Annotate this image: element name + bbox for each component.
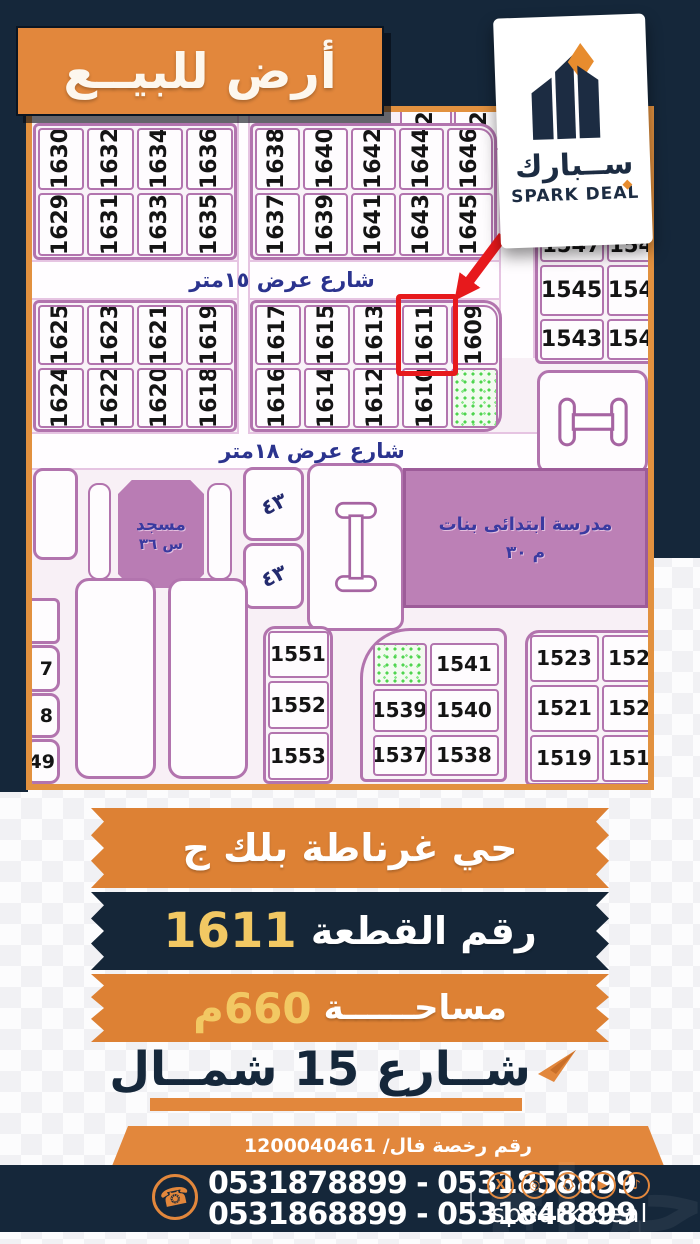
green-strip xyxy=(88,483,111,580)
plot-cell: 1638 xyxy=(255,128,300,191)
plot-cell: 1553 xyxy=(268,732,329,780)
plot-cell: 1641 xyxy=(351,193,396,256)
plot-cell: 1623 xyxy=(87,305,134,365)
plot-cell: 1621 xyxy=(137,305,184,365)
plot-cell: 1540 xyxy=(430,689,499,732)
page-title: أرض للبيــع xyxy=(63,43,336,100)
plot-cell: 1518 xyxy=(602,735,655,782)
plot-cell: 1635 xyxy=(186,193,233,256)
plot-cell: 1523 xyxy=(530,635,599,682)
street-direction-underline xyxy=(150,1098,522,1111)
plot-cell: 1646 xyxy=(447,128,492,191)
plot-cell: 1520 xyxy=(602,685,655,732)
logo-arabic-name: ســبارك xyxy=(514,146,633,185)
plot-block-1609-1617: 1617 1615 1613 1611 1609 1616 1614 1612 … xyxy=(250,300,502,432)
plot-cell: 1616 xyxy=(255,368,301,428)
plot-number-value: 1611 xyxy=(163,903,297,959)
plot-cell: 1620 xyxy=(137,368,184,428)
plot-cell: 1537 xyxy=(373,735,427,776)
plot-cell: 1617 xyxy=(255,305,301,365)
school-label: مدرسة ابتدائى بنات xyxy=(439,514,613,535)
plot-cell: 1637 xyxy=(255,193,300,256)
plot-cell: 1632 xyxy=(87,128,134,191)
park-cell xyxy=(373,643,427,686)
navy-background-left xyxy=(0,0,28,792)
plot-cell: 1630 xyxy=(38,128,85,191)
phone-icon: ☎ xyxy=(152,1174,198,1220)
plot-cell: 1541 xyxy=(430,643,499,686)
plot-cell: 49 xyxy=(26,739,60,784)
area-ribbon: مساحــــــة 660م xyxy=(91,974,609,1042)
park-cell xyxy=(26,598,60,644)
plot-cell: 1551 xyxy=(268,631,329,679)
unlabeled-plot xyxy=(33,468,78,560)
plot-cell: 1610 xyxy=(402,368,448,428)
i-beam-icon xyxy=(331,495,381,599)
plot-block-1518-1523: 1523 1522 1521 1520 1519 1518 xyxy=(525,630,654,786)
district-label: حي غرناطة بلك ج xyxy=(182,826,517,870)
plot-block-1618-1625: 1625 1623 1621 1619 1624 1622 1620 1618 xyxy=(33,300,237,432)
annotation-cell: ٤٣ xyxy=(243,467,304,541)
plot-cell: 1634 xyxy=(137,128,184,191)
logo-card: ســبارك SPARK DEAL xyxy=(493,13,653,248)
plot-cell: 1625 xyxy=(38,305,85,365)
plot-cell: 7 xyxy=(26,645,60,692)
plot-block-1537-1541: 1541 1539 1540 1537 1538 xyxy=(360,628,507,782)
plot-cell: 1539 xyxy=(373,689,427,732)
plot-cell: 1639 xyxy=(303,193,348,256)
plot-cell: 1552 xyxy=(268,681,329,729)
plot-number-ribbon: رقم القطعة 1611 xyxy=(91,892,609,970)
mosque-label: مسجد xyxy=(136,515,186,535)
plot-cell: 1609 xyxy=(451,305,497,365)
school-block: مدرسة ابتدائى بنات م ٣٠ xyxy=(403,468,648,608)
dumbbell-icon xyxy=(551,393,635,451)
mosque-number: س ٣٦ xyxy=(139,535,183,553)
plot-cell: 1612 xyxy=(353,368,399,428)
plot-cell: 1614 xyxy=(304,368,350,428)
phone-numbers: 0531878899 - 0531858899 0531868899 - 053… xyxy=(208,1168,466,1230)
plot-cell: 1631 xyxy=(87,193,134,256)
plot-cell: 1622 xyxy=(87,368,134,428)
area-value: 660م xyxy=(193,984,311,1033)
plot-cell: 1544 xyxy=(607,265,655,316)
plot-cell: 1521 xyxy=(530,685,599,732)
plot-cell: 1538 xyxy=(430,735,499,776)
plot-cell: 1519 xyxy=(530,735,599,782)
area-label: مساحــــــة xyxy=(324,988,507,1028)
plot-cell: 1615 xyxy=(304,305,350,365)
mosque-block: مسجد س ٣٦ xyxy=(118,480,204,588)
school-number: م ٣٠ xyxy=(506,543,545,563)
facility-block xyxy=(537,370,648,474)
navy-background-right xyxy=(654,0,700,558)
watermark: حراج xyxy=(485,1147,700,1244)
title-banner: أرض للبيــع xyxy=(16,26,384,116)
plot-cell: 1644 xyxy=(399,128,444,191)
district-ribbon: حي غرناطة بلك ج xyxy=(91,808,609,888)
green-strip xyxy=(207,483,232,580)
park-cell xyxy=(451,368,497,428)
plot-block-1629-1636: 1630 1632 1634 1636 1629 1631 1633 1635 xyxy=(33,123,237,260)
plot-block-1551-1553: 1551 1552 1553 xyxy=(263,626,333,784)
street-15m-label: شارع عرض ١٥متر xyxy=(92,268,472,292)
phone-line-2: 0531868899 - 0531848899 xyxy=(208,1199,466,1230)
plot-cell: 1629 xyxy=(38,193,85,256)
plot-number-label: رقم القطعة xyxy=(311,909,537,953)
plot-cell: 1640 xyxy=(303,128,348,191)
footer-bar: ☎ 0531878899 - 0531858899 0531868899 - 0… xyxy=(0,1165,700,1232)
phone-line-1: 0531878899 - 0531858899 xyxy=(208,1168,466,1199)
plot-cell: 1624 xyxy=(38,368,85,428)
plot-cell: 1542 xyxy=(607,319,655,360)
plot-cell: 1619 xyxy=(186,305,233,365)
footer-divider xyxy=(470,1176,472,1220)
annotation-cell: ٤٣ xyxy=(243,543,304,609)
plot-cell: 1522 xyxy=(602,635,655,682)
plot-cell: 8 xyxy=(26,693,60,738)
plot-cell: 1642 xyxy=(351,128,396,191)
paper-plane-icon xyxy=(536,1046,580,1086)
plot-cell: 1636 xyxy=(186,128,233,191)
park-block xyxy=(75,578,156,779)
poster: شارع عرض ١٥متر شارع عرض ١٨متر 12 12 1630… xyxy=(0,0,700,1244)
street-18m-label: شارع عرض ١٨متر xyxy=(142,439,482,463)
plot-cell: 1543 xyxy=(540,319,604,360)
plot-cell: 1633 xyxy=(137,193,184,256)
plot-cell: 1545 xyxy=(540,265,604,316)
plot-cell: 1618 xyxy=(186,368,233,428)
facility-block xyxy=(307,463,404,631)
logo-english-name: SPARK DEAL xyxy=(511,183,640,207)
plot-cell: 1613 xyxy=(353,305,399,365)
park-block xyxy=(168,578,248,779)
spark-deal-building-icon xyxy=(518,32,626,148)
